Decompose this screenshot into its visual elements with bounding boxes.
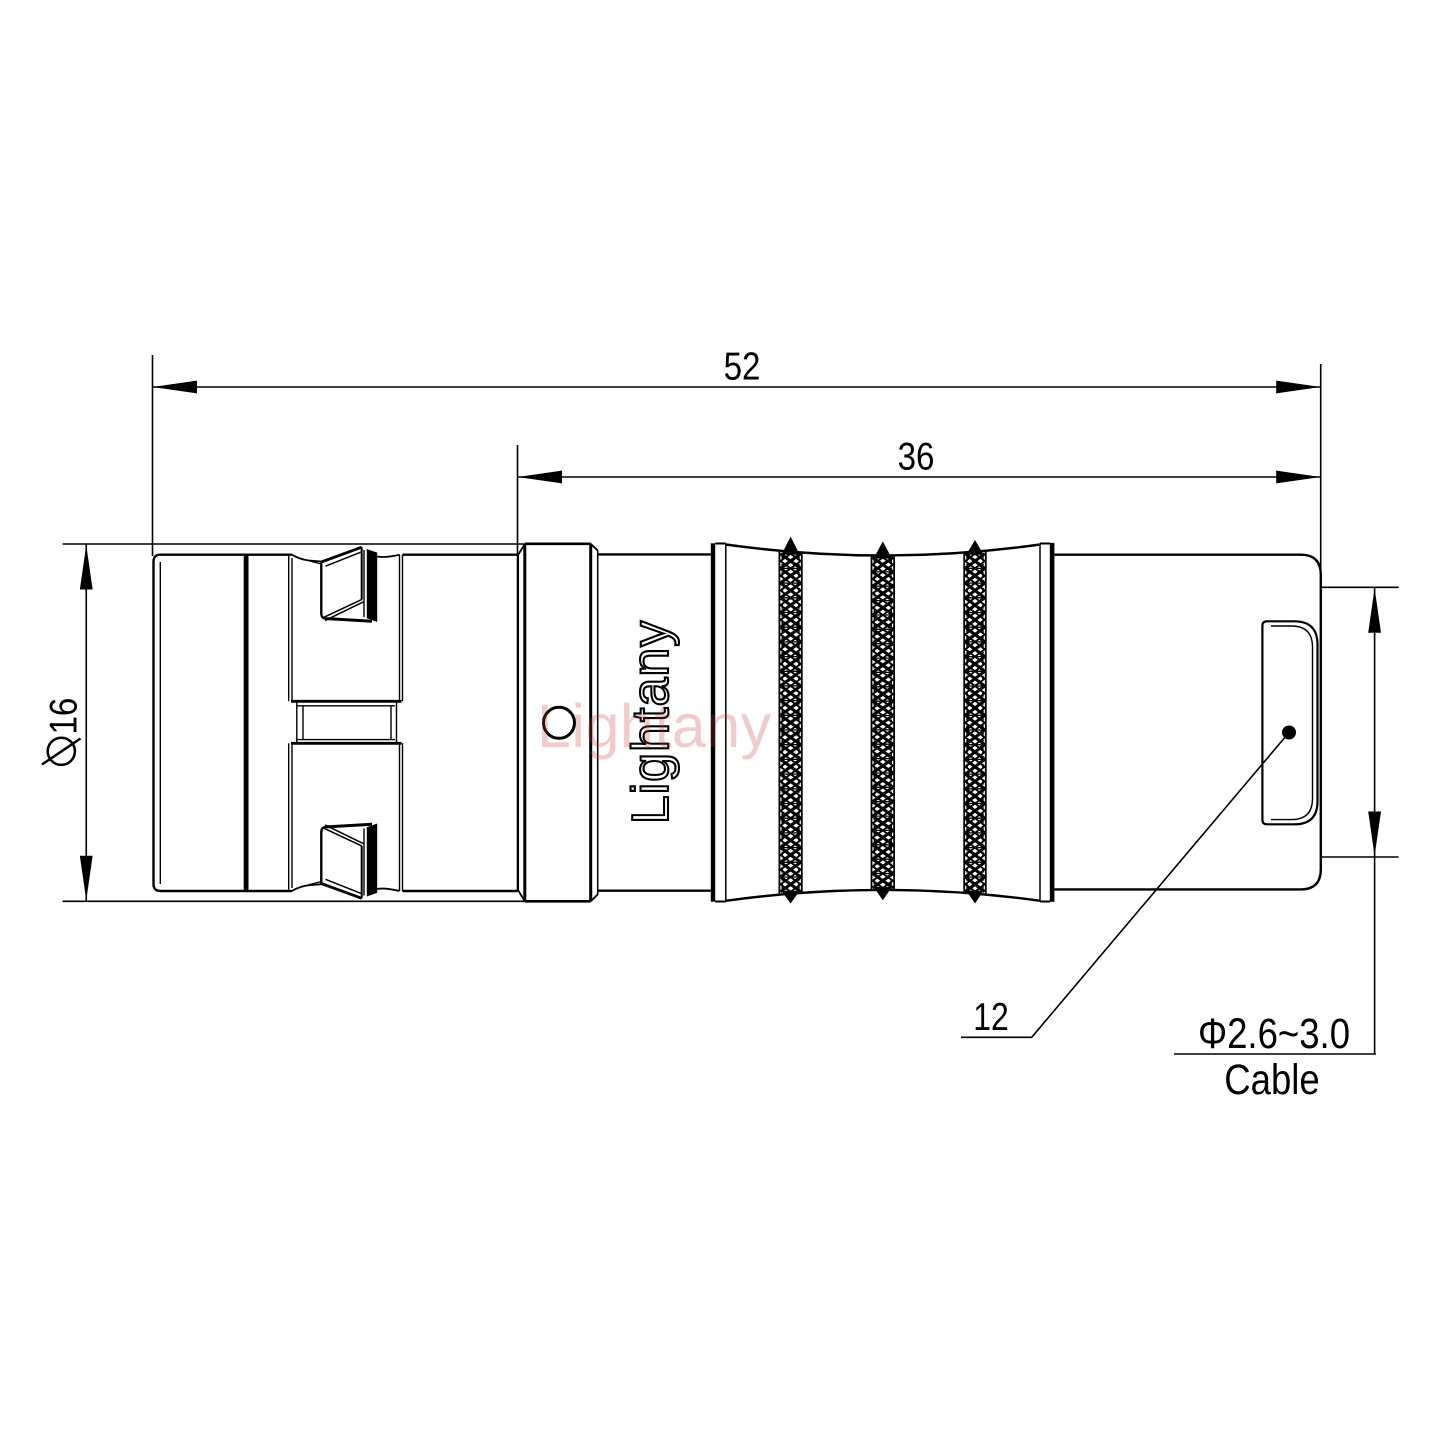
svg-text:52: 52 — [724, 344, 761, 388]
svg-text:16: 16 — [41, 698, 85, 735]
svg-text:Cable: Cable — [1224, 1056, 1319, 1103]
svg-text:Φ2.6~3.0: Φ2.6~3.0 — [1198, 1010, 1350, 1057]
svg-text:Lightany: Lightany — [537, 692, 772, 760]
svg-text:12: 12 — [973, 995, 1009, 1039]
svg-text:36: 36 — [898, 434, 935, 478]
